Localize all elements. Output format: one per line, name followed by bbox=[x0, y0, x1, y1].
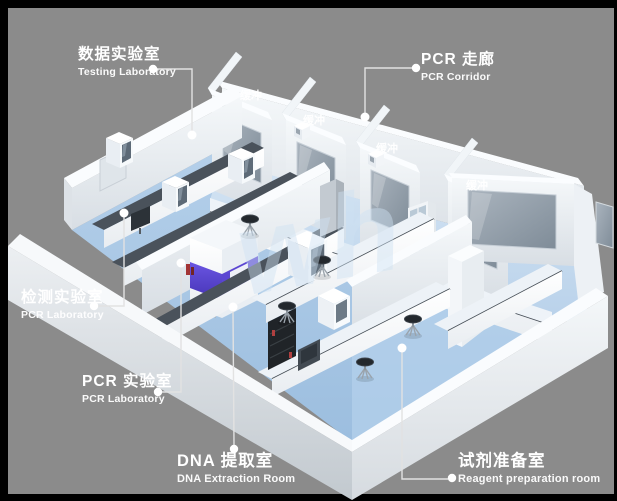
buffer-tag: 缓冲 bbox=[240, 88, 262, 102]
callout-pcr-laboratory: PCR 实验室 PCR Laboratory bbox=[82, 373, 173, 405]
callout-zh: DNA 提取室 bbox=[177, 452, 295, 471]
leader-line-dna bbox=[233, 311, 234, 445]
callout-zh: PCR 实验室 bbox=[82, 373, 173, 391]
anchor-dot bbox=[120, 209, 129, 218]
callout-en: Reagent preparation room bbox=[458, 473, 600, 486]
watermark: wh bbox=[226, 163, 410, 321]
far-right-window bbox=[596, 202, 613, 248]
callout-zh: PCR 走廊 bbox=[421, 51, 495, 69]
anchor-dot bbox=[229, 303, 238, 312]
anchor-dot bbox=[188, 131, 197, 140]
callout-en: PCR Laboratory bbox=[21, 309, 104, 321]
callout-en: Testing Laboratory bbox=[78, 66, 176, 78]
callout-en: PCR Corridor bbox=[421, 71, 495, 83]
callout-zh: 检测实验室 bbox=[21, 289, 104, 307]
screenshot-viewport: wh 缓冲 缓冲 缓冲 缓冲 bbox=[0, 0, 617, 501]
callout-zh: 试剂准备室 bbox=[458, 452, 600, 471]
callout-en: DNA Extraction Room bbox=[177, 473, 295, 486]
buffer-tag: 缓冲 bbox=[376, 141, 398, 155]
callout-pcr-corridor: PCR 走廊 PCR Corridor bbox=[421, 51, 495, 83]
anchor-dot bbox=[448, 474, 456, 482]
anchor-dot bbox=[412, 64, 420, 72]
callout-dna-extraction-room: DNA 提取室 DNA Extraction Room bbox=[177, 452, 295, 486]
callout-reagent-preparation-room: 试剂准备室 Reagent preparation room bbox=[458, 452, 600, 486]
buffer-tag: 缓冲 bbox=[303, 113, 325, 127]
instrument bbox=[106, 132, 133, 168]
anchor-dot bbox=[398, 344, 407, 353]
fire-extinguisher bbox=[186, 264, 190, 275]
fire-extinguisher bbox=[191, 267, 194, 275]
callout-detection-laboratory: 检测实验室 PCR Laboratory bbox=[21, 289, 104, 321]
callout-testing-laboratory: 数据实验室 Testing Laboratory bbox=[78, 46, 176, 78]
instrument bbox=[228, 148, 255, 184]
buffer-tag: 缓冲 bbox=[466, 178, 488, 192]
anchor-dot bbox=[361, 113, 370, 122]
anchor-dot bbox=[177, 259, 186, 268]
callout-en: PCR Laboratory bbox=[82, 393, 173, 405]
leader-line-corridor bbox=[365, 68, 412, 113]
callout-zh: 数据实验室 bbox=[78, 46, 176, 64]
instrument bbox=[162, 176, 189, 212]
